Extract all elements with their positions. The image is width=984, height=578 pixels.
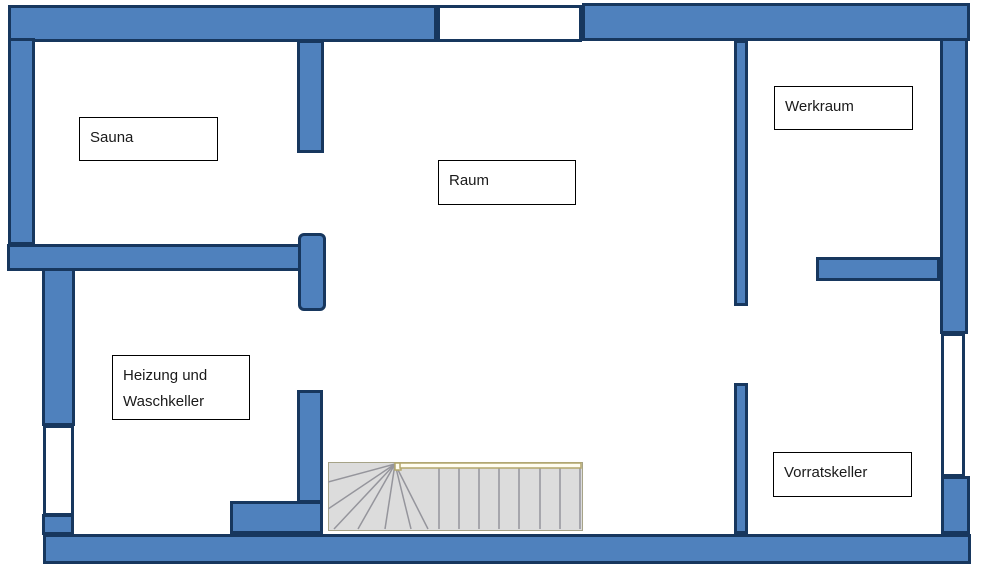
wall-stair-block (230, 501, 323, 534)
room-label-werkraum: Werkraum (774, 86, 913, 130)
room-label-heizung-line1: Heizung und (123, 363, 239, 389)
wall-stair-vertical (297, 390, 323, 503)
staircase (328, 462, 583, 531)
window-left (43, 425, 74, 516)
wall-right-horizontal (816, 257, 940, 281)
room-label-raum-text: Raum (449, 172, 489, 189)
wall-mid-right-upper (734, 40, 748, 306)
room-label-werkraum-text: Werkraum (785, 98, 854, 115)
window-right (941, 333, 965, 477)
wall-right-lower (941, 476, 970, 534)
wall-horizontal-left (7, 244, 301, 271)
wall-mid-stub (298, 233, 326, 311)
wall-left-lower (42, 268, 75, 426)
room-label-raum: Raum (438, 160, 576, 205)
room-label-vorratskeller-text: Vorratskeller (784, 464, 867, 481)
window-top (437, 5, 582, 42)
room-label-heizung-line2: Waschkeller (123, 389, 239, 415)
wall-right-upper (940, 38, 968, 334)
wall-bottom (43, 534, 971, 564)
room-label-sauna-text: Sauna (90, 129, 133, 146)
room-label-vorratskeller: Vorratskeller (773, 452, 912, 497)
wall-mid-vertical-upper (297, 40, 324, 153)
wall-top-right (582, 3, 970, 41)
room-label-sauna: Sauna (79, 117, 218, 161)
wall-left-upper (8, 38, 35, 245)
wall-top-left (8, 5, 437, 42)
wall-left-lower-stub (42, 514, 74, 535)
room-label-heizung-waschkeller: Heizung und Waschkeller (112, 355, 250, 420)
wall-mid-right-lower (734, 383, 748, 534)
floor-plan: Sauna Raum Werkraum Heizung und Waschkel… (0, 0, 984, 578)
